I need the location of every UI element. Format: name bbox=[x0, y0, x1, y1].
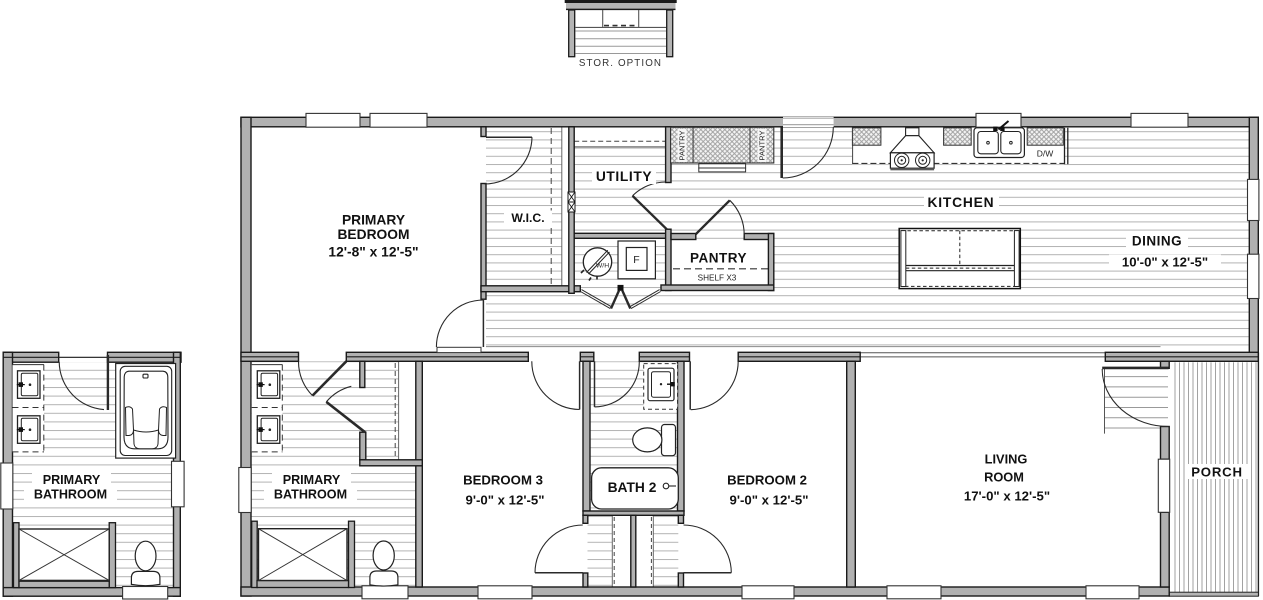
svg-text:BATHROOM: BATHROOM bbox=[274, 488, 347, 502]
svg-text:BEDROOM 2: BEDROOM 2 bbox=[727, 473, 807, 488]
svg-text:17'-0" x 12'-5": 17'-0" x 12'-5" bbox=[964, 489, 1050, 504]
svg-text:PRIMARY: PRIMARY bbox=[283, 473, 341, 487]
svg-text:BATHROOM: BATHROOM bbox=[34, 488, 107, 502]
svg-text:DINING: DINING bbox=[1132, 234, 1182, 249]
svg-text:BATH 2: BATH 2 bbox=[608, 480, 657, 495]
svg-text:BEDROOM: BEDROOM bbox=[337, 227, 409, 242]
svg-text:PANTRY: PANTRY bbox=[758, 130, 767, 160]
svg-text:PANTRY: PANTRY bbox=[690, 251, 747, 266]
svg-text:D/W: D/W bbox=[1037, 149, 1054, 159]
svg-text:PORCH: PORCH bbox=[1191, 465, 1243, 480]
svg-text:KITCHEN: KITCHEN bbox=[928, 195, 995, 210]
svg-text:ROOM: ROOM bbox=[984, 470, 1024, 485]
svg-text:PANTRY: PANTRY bbox=[678, 130, 687, 160]
svg-text:9'-0" x 12'-5": 9'-0" x 12'-5" bbox=[730, 493, 809, 508]
svg-text:10'-0" x 12'-5": 10'-0" x 12'-5" bbox=[1122, 255, 1208, 270]
svg-text:PRIMARY: PRIMARY bbox=[43, 473, 101, 487]
svg-text:9'-0" x 12'-5": 9'-0" x 12'-5" bbox=[466, 493, 545, 508]
svg-text:BEDROOM 3: BEDROOM 3 bbox=[463, 473, 543, 488]
svg-text:F: F bbox=[633, 254, 639, 266]
svg-text:W.I.C.: W.I.C. bbox=[511, 211, 544, 225]
svg-text:LIVING: LIVING bbox=[985, 452, 1028, 467]
svg-text:STOR. OPTION: STOR. OPTION bbox=[579, 58, 662, 69]
svg-text:PRIMARY: PRIMARY bbox=[342, 213, 405, 228]
svg-text:W/H: W/H bbox=[596, 263, 609, 270]
svg-text:SHELF X3: SHELF X3 bbox=[698, 274, 737, 283]
svg-text:12'-8" x 12'-5": 12'-8" x 12'-5" bbox=[328, 245, 418, 260]
svg-text:UTILITY: UTILITY bbox=[596, 169, 652, 184]
